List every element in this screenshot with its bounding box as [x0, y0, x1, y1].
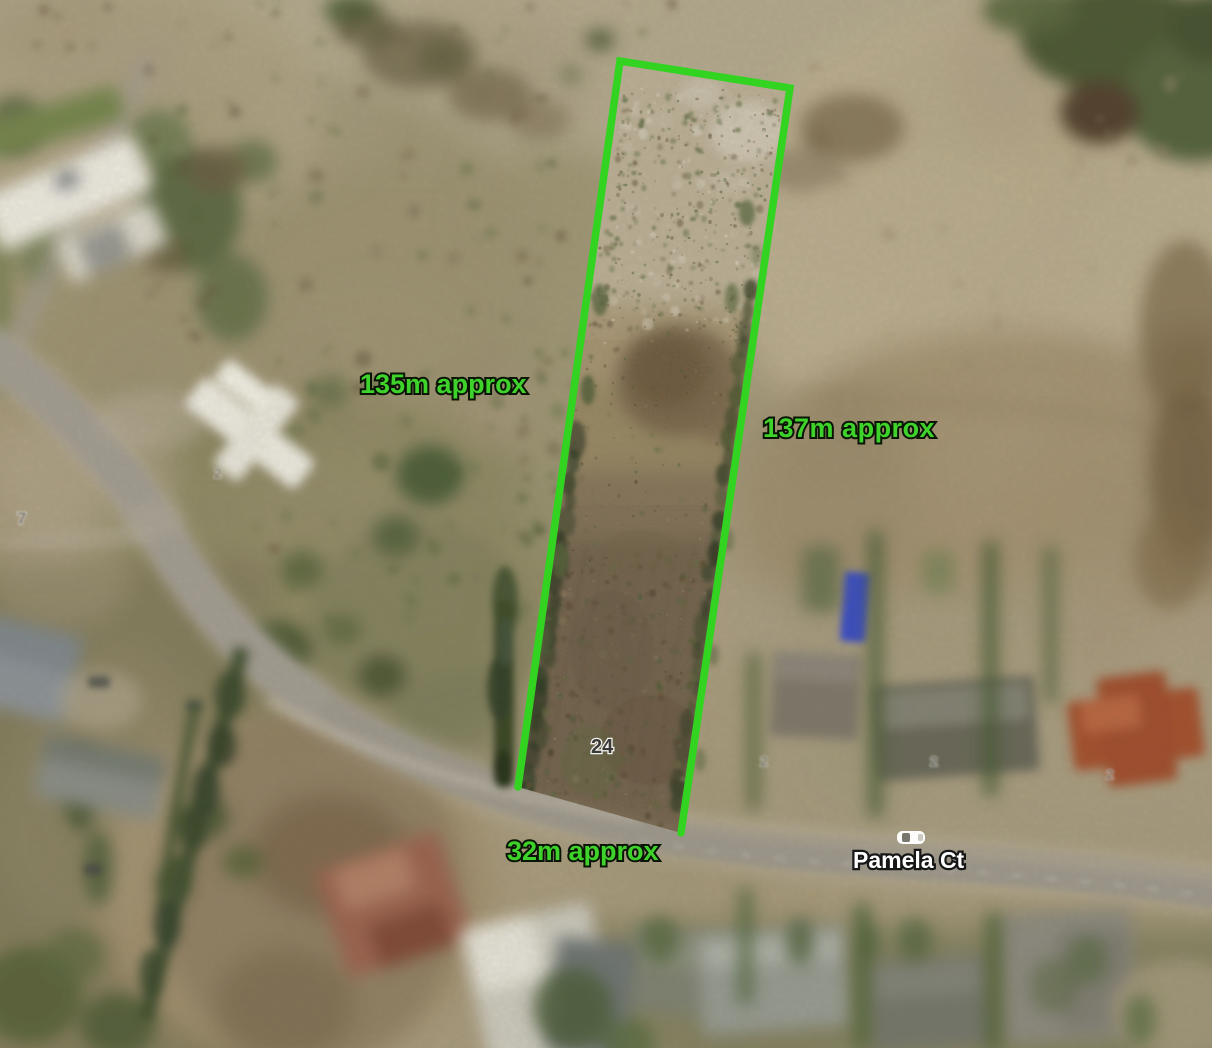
- svg-text:137m approx: 137m approx: [763, 413, 935, 443]
- svg-text:7: 7: [17, 509, 26, 528]
- svg-text:24: 24: [591, 736, 614, 758]
- svg-text:32m approx: 32m approx: [507, 836, 659, 866]
- svg-text:2: 2: [930, 753, 938, 769]
- svg-text:135m approx: 135m approx: [360, 369, 527, 399]
- svg-text:2: 2: [760, 753, 768, 769]
- svg-text:2: 2: [214, 465, 222, 481]
- svg-text:2: 2: [1106, 766, 1114, 782]
- svg-text:Pamela Ct: Pamela Ct: [853, 847, 965, 873]
